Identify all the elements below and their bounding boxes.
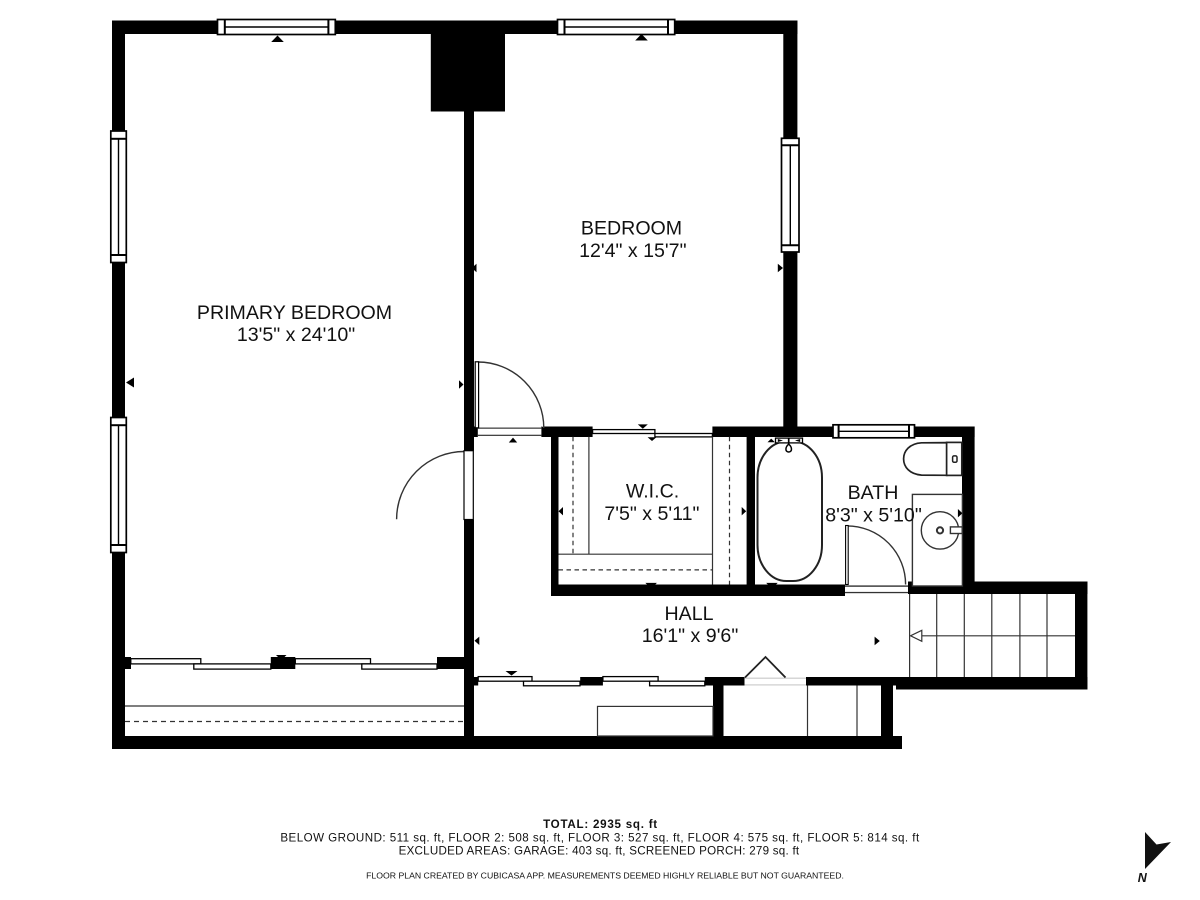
svg-text:TOTAL: 2935 sq. ft: TOTAL: 2935 sq. ft: [543, 818, 658, 831]
svg-text:13'5" x 24'10": 13'5" x 24'10": [237, 324, 355, 346]
svg-text:BELOW GROUND: 511 sq. ft, FLOO: BELOW GROUND: 511 sq. ft, FLOOR 2: 508 s…: [280, 831, 920, 844]
svg-text:EXCLUDED AREAS: GARAGE: 403 sq: EXCLUDED AREAS: GARAGE: 403 sq. ft, SCRE…: [399, 845, 800, 858]
svg-text:16'1" x 9'6": 16'1" x 9'6": [642, 625, 739, 647]
svg-text:8'3" x 5'10": 8'3" x 5'10": [825, 505, 922, 527]
svg-text:BATH: BATH: [848, 482, 899, 504]
svg-text:PRIMARY BEDROOM: PRIMARY BEDROOM: [197, 302, 392, 324]
svg-text:FLOOR PLAN CREATED BY CUBICASA: FLOOR PLAN CREATED BY CUBICASA APP. MEAS…: [366, 870, 844, 880]
svg-text:W.I.C.: W.I.C.: [626, 481, 679, 503]
svg-text:7'5" x 5'11": 7'5" x 5'11": [604, 503, 699, 525]
svg-text:12'4" x 15'7": 12'4" x 15'7": [579, 240, 687, 262]
svg-text:N: N: [1138, 871, 1148, 885]
svg-text:BEDROOM: BEDROOM: [581, 218, 682, 240]
svg-text:HALL: HALL: [664, 603, 713, 625]
